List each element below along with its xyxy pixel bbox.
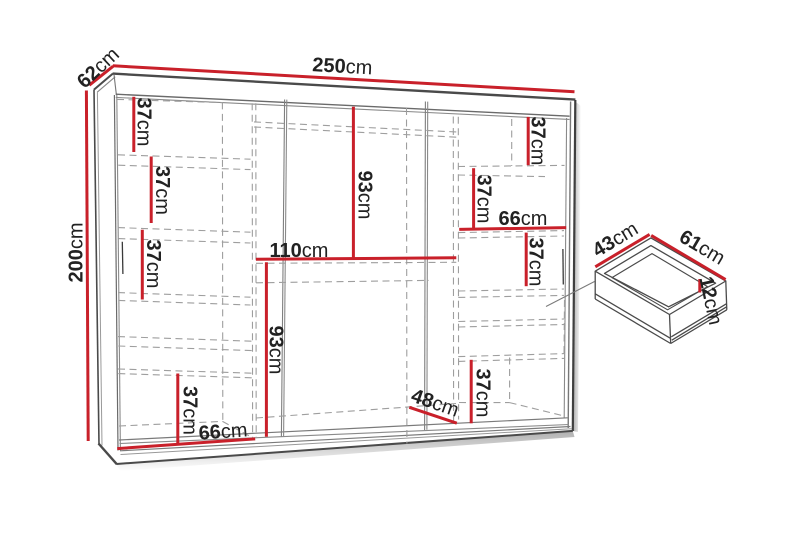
svg-text:61cm: 61cm [675, 226, 728, 270]
svg-text:37cm: 37cm [179, 386, 201, 435]
svg-text:37cm: 37cm [133, 98, 155, 147]
svg-text:37cm: 37cm [472, 369, 494, 418]
svg-text:93cm: 93cm [265, 326, 287, 375]
svg-text:66cm: 66cm [198, 419, 248, 444]
svg-text:37cm: 37cm [473, 175, 495, 224]
svg-text:200cm: 200cm [66, 222, 88, 282]
svg-text:250cm: 250cm [312, 54, 373, 79]
svg-text:93cm: 93cm [354, 171, 376, 220]
svg-text:110cm: 110cm [270, 240, 329, 262]
svg-text:37cm: 37cm [527, 117, 549, 166]
svg-text:12cm: 12cm [695, 275, 727, 327]
svg-text:37cm: 37cm [525, 238, 547, 287]
svg-text:66cm: 66cm [499, 208, 548, 230]
svg-text:37cm: 37cm [151, 166, 173, 215]
svg-text:37cm: 37cm [142, 240, 164, 289]
